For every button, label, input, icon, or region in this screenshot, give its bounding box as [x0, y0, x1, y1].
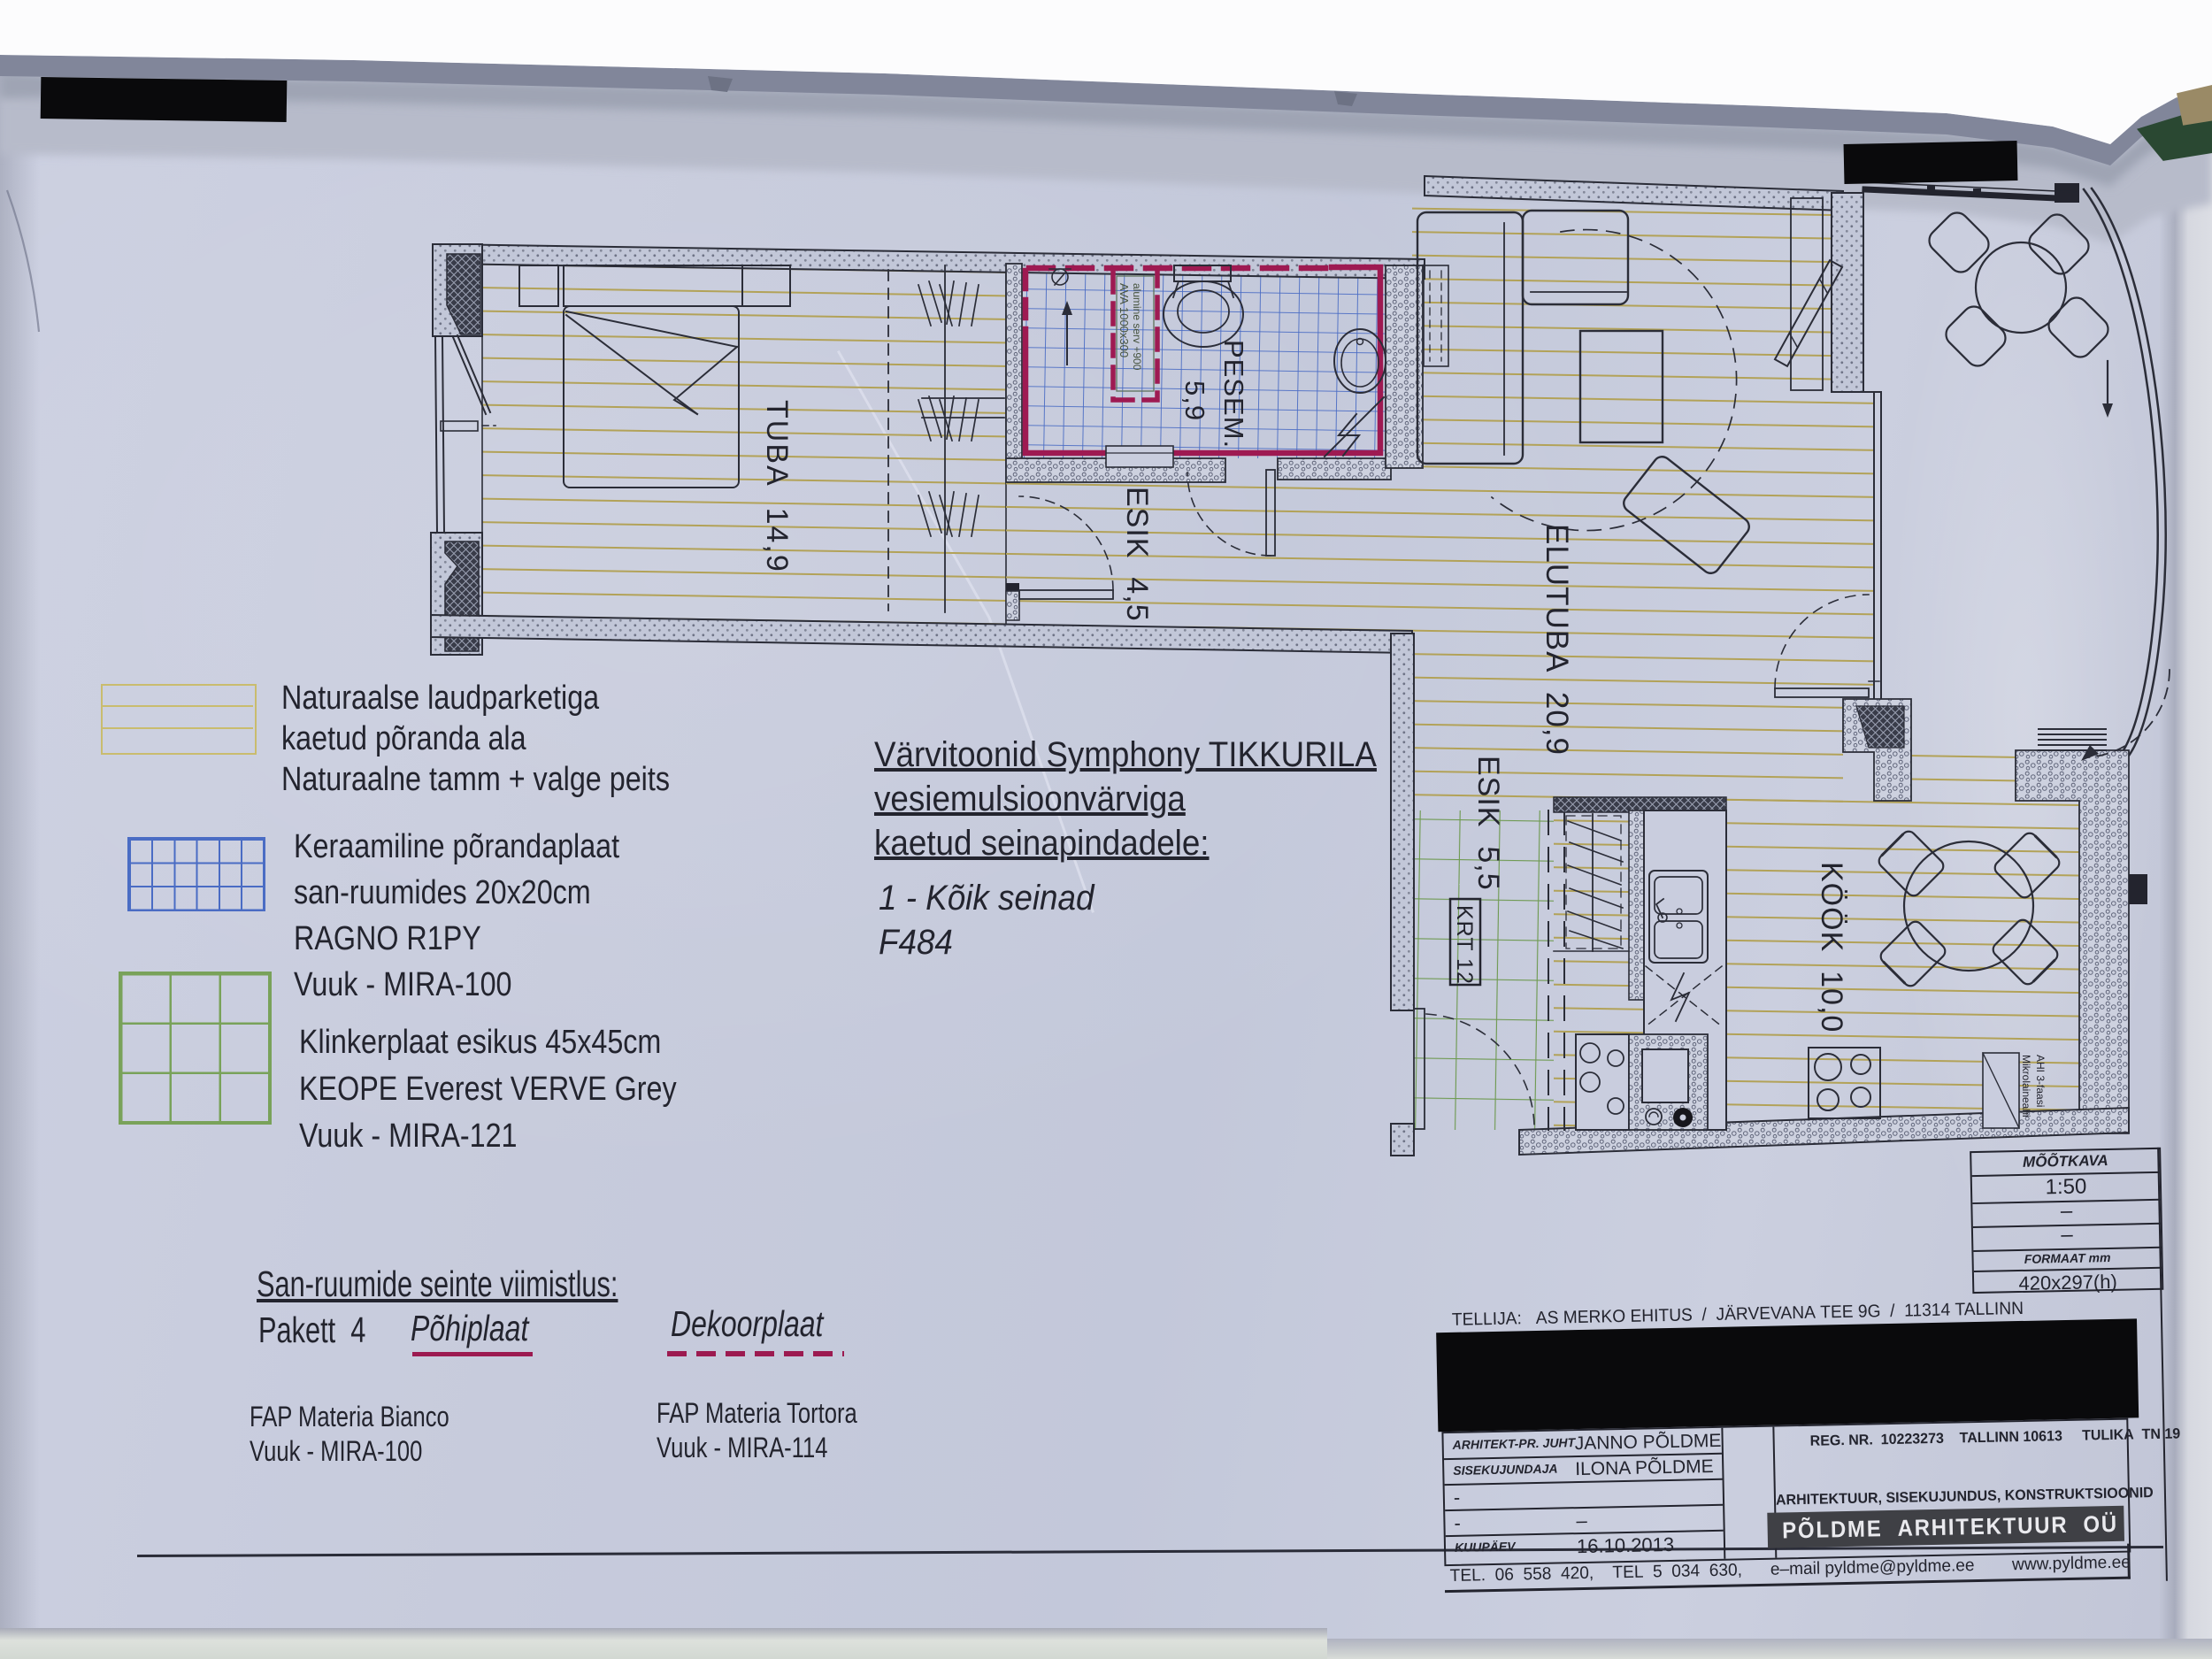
- svg-text:ELUTUBA 20,9: ELUTUBA 20,9: [1540, 524, 1574, 756]
- svg-text:5,9: 5,9: [1179, 380, 1210, 421]
- svg-text:TUBA 14,9: TUBA 14,9: [760, 400, 794, 573]
- svg-text:AVA 1000x300: AVA 1000x300: [1118, 283, 1131, 357]
- svg-text:ESIK 5,5: ESIK 5,5: [1471, 756, 1505, 891]
- svg-text:KRT 12: KRT 12: [1452, 905, 1477, 985]
- svg-text:alumine serv +900: alumine serv +900: [1131, 283, 1143, 371]
- svg-text:KÖÖK 10,0: KÖÖK 10,0: [1815, 862, 1848, 1033]
- svg-text:Mikrolaineahi: Mikrolaineahi: [2020, 1055, 2032, 1118]
- svg-text:AHI 3-faasi: AHI 3-faasi: [2034, 1055, 2047, 1107]
- svg-text:ESIK 4,5: ESIK 4,5: [1120, 487, 1154, 622]
- svg-text:PESEM.: PESEM.: [1218, 340, 1249, 449]
